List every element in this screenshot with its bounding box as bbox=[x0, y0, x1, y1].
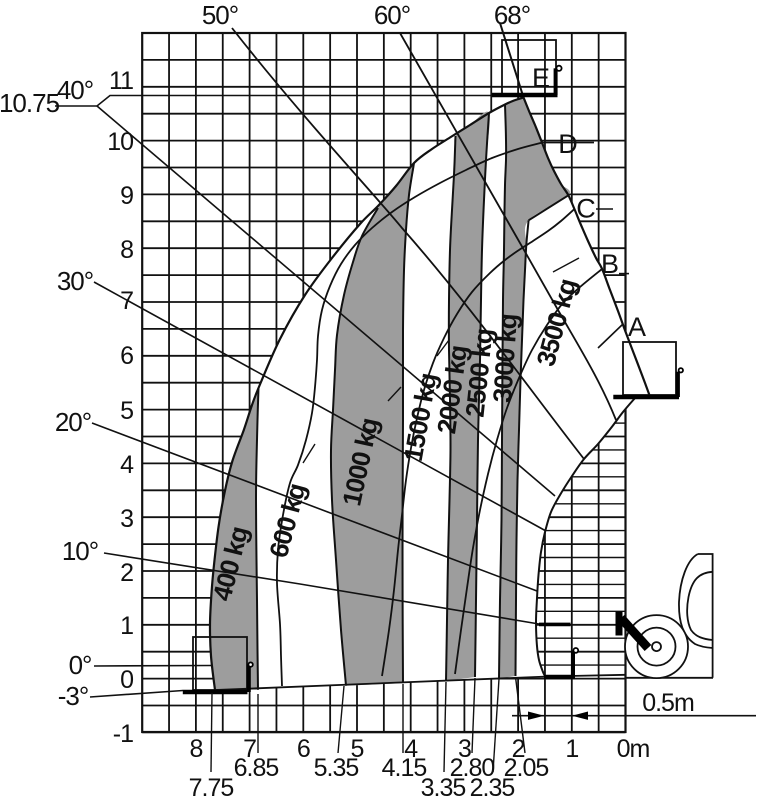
svg-text:8: 8 bbox=[189, 735, 202, 763]
svg-text:2: 2 bbox=[120, 559, 133, 587]
svg-text:6: 6 bbox=[297, 735, 310, 763]
svg-text:6: 6 bbox=[120, 342, 133, 370]
svg-text:7.75: 7.75 bbox=[189, 774, 234, 802]
svg-text:A: A bbox=[628, 312, 646, 342]
svg-text:5: 5 bbox=[120, 397, 133, 425]
svg-text:B: B bbox=[601, 249, 619, 279]
svg-text:C: C bbox=[576, 194, 596, 224]
svg-text:10: 10 bbox=[107, 128, 133, 156]
svg-text:1: 1 bbox=[565, 735, 578, 763]
svg-text:9: 9 bbox=[120, 182, 133, 210]
svg-text:1: 1 bbox=[120, 612, 133, 640]
svg-text:10°: 10° bbox=[62, 536, 98, 566]
svg-text:68°: 68° bbox=[494, 0, 530, 30]
svg-text:6.85: 6.85 bbox=[234, 754, 279, 782]
svg-text:3: 3 bbox=[120, 505, 133, 533]
svg-text:4: 4 bbox=[120, 451, 134, 479]
svg-text:3000 kg: 3000 kg bbox=[487, 313, 523, 403]
svg-text:40°: 40° bbox=[57, 75, 93, 105]
svg-text:10.75: 10.75 bbox=[0, 88, 60, 118]
svg-text:0.5m: 0.5m bbox=[642, 689, 694, 717]
svg-text:E: E bbox=[532, 63, 550, 93]
svg-text:0: 0 bbox=[120, 666, 133, 694]
svg-text:2.05: 2.05 bbox=[504, 754, 549, 782]
svg-text:0°: 0° bbox=[69, 650, 92, 680]
svg-text:-3°: -3° bbox=[58, 681, 89, 711]
svg-text:20°: 20° bbox=[55, 407, 91, 437]
svg-text:50°: 50° bbox=[202, 0, 238, 30]
svg-text:11: 11 bbox=[109, 67, 133, 95]
svg-text:5.35: 5.35 bbox=[314, 754, 359, 782]
svg-text:-1: -1 bbox=[113, 720, 133, 748]
svg-text:8: 8 bbox=[120, 236, 133, 264]
svg-text:0m: 0m bbox=[617, 735, 650, 763]
svg-text:D: D bbox=[558, 129, 578, 159]
svg-text:7: 7 bbox=[120, 287, 133, 315]
svg-text:60°: 60° bbox=[374, 0, 410, 30]
svg-text:30°: 30° bbox=[57, 266, 93, 296]
